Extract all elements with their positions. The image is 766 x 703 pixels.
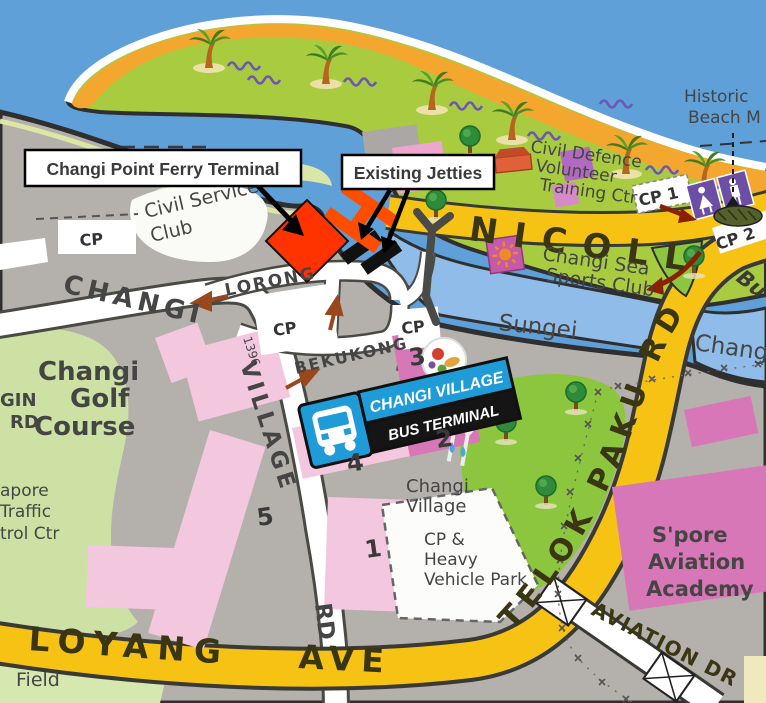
road-label-ave: AVE	[298, 637, 392, 681]
golf-label-2: Golf	[70, 384, 130, 414]
road-label-rd: RD	[309, 602, 339, 642]
golf-label: Changi	[38, 357, 139, 387]
pale-yellow-patch	[744, 656, 766, 703]
changi-village-label: Changi	[406, 476, 469, 497]
changi-village-label-2: Village	[406, 496, 466, 517]
aviation-academy-label-2: Aviation	[648, 550, 745, 574]
tree-icon	[535, 476, 557, 509]
existing-jetties-callout-text: Existing Jetties	[354, 163, 483, 183]
heavy-vehicle-label: CP &	[424, 530, 465, 550]
house-icon	[494, 146, 532, 173]
heavy-vehicle-label-2: Heavy	[424, 550, 478, 570]
historic-beach-label: Historic	[684, 87, 749, 107]
historic-beach-label-2: Beach M	[688, 108, 761, 128]
field-label: Field	[16, 669, 60, 691]
ferry-terminal-callout-text: Changi Point Ferry Terminal	[46, 159, 279, 179]
road-label-gin: GIN	[0, 390, 37, 411]
aviation-academy-label-3: Academy	[646, 577, 754, 601]
traffic-ctrl-label: apore	[0, 481, 49, 501]
tree-icon	[565, 382, 587, 415]
cp-label-sungei: CP	[400, 317, 426, 338]
changi-point-map: CHANGI VILLAGE BUS TERMINAL NICOLL	[0, 0, 766, 703]
traffic-ctrl-label-3: trol Ctr	[0, 524, 59, 544]
cp-label-west: CP	[79, 229, 104, 250]
building-pink-sw	[86, 545, 193, 611]
aviation-academy-label: S'pore	[652, 523, 728, 547]
golf-label-3: Course	[34, 412, 135, 442]
traffic-ctrl-label-2: Traffic	[0, 502, 51, 522]
heavy-vehicle-label-3: Vehicle Park	[424, 570, 527, 590]
map-canvas: CHANGI VILLAGE BUS TERMINAL NICOLL	[0, 0, 766, 703]
cp-label-lorong: CP	[272, 318, 298, 340]
